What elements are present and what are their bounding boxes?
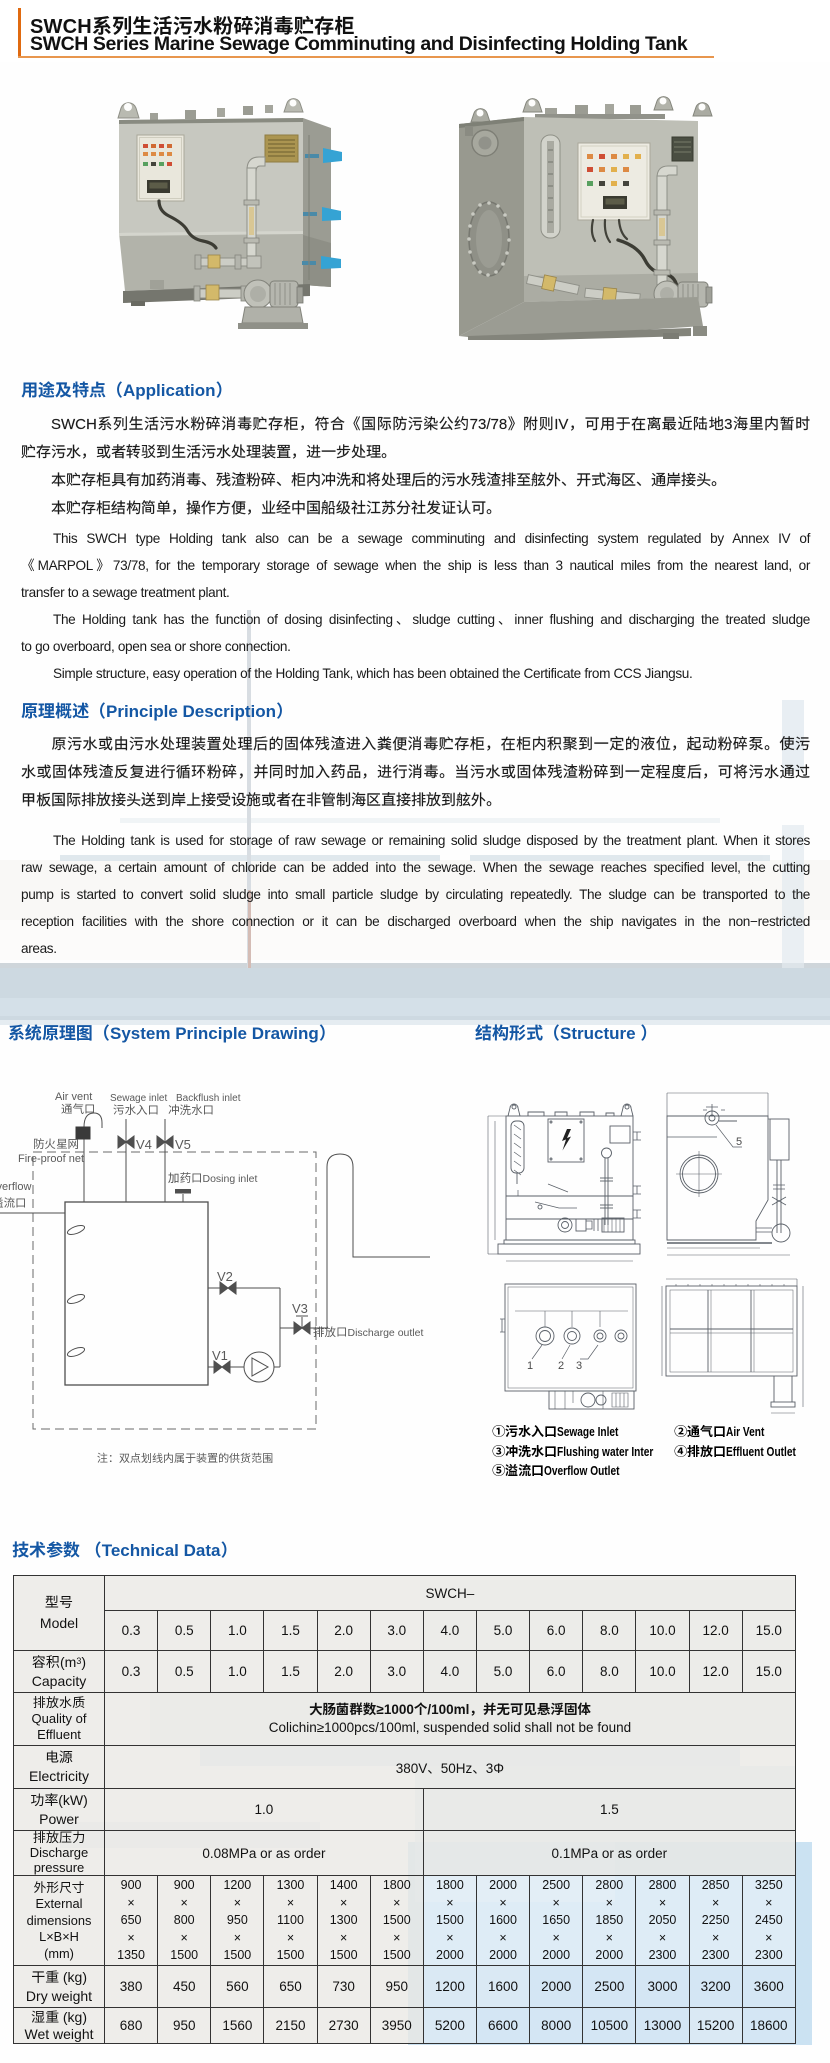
svg-text:排放口Discharge outlet: 排放口Discharge outlet	[313, 1326, 423, 1339]
svg-text:Sewage inlet: Sewage inlet	[110, 1093, 167, 1104]
svg-text:Air vent: Air vent	[55, 1091, 92, 1103]
svg-text:冲洗水口: 冲洗水口	[168, 1104, 214, 1117]
svg-text:Backflush inlet: Backflush inlet	[176, 1093, 241, 1104]
svg-text:污水入口: 污水入口	[113, 1104, 159, 1117]
svg-text:V2: V2	[217, 1269, 233, 1284]
svg-text:V4: V4	[136, 1137, 152, 1152]
svg-text:通气口: 通气口	[61, 1103, 96, 1116]
svg-text:注：双点划线内属于装置的供货范围: 注：双点划线内属于装置的供货范围	[97, 1452, 273, 1465]
svg-text:2: 2	[558, 1360, 564, 1372]
svg-text:加药口Dosing inlet: 加药口Dosing inlet	[168, 1172, 257, 1185]
svg-text:Fire-proof net: Fire-proof net	[18, 1153, 84, 1165]
svg-text:V3: V3	[292, 1301, 308, 1316]
svg-text:溢流口: 溢流口	[0, 1197, 27, 1210]
svg-text:防火星网: 防火星网	[33, 1138, 79, 1151]
svg-text:5: 5	[736, 1136, 742, 1148]
svg-text:Overflow: Overflow	[0, 1181, 31, 1193]
svg-text:3: 3	[576, 1360, 582, 1372]
svg-text:1: 1	[527, 1360, 533, 1372]
svg-text:V1: V1	[212, 1348, 228, 1363]
svg-text:V5: V5	[175, 1137, 191, 1152]
